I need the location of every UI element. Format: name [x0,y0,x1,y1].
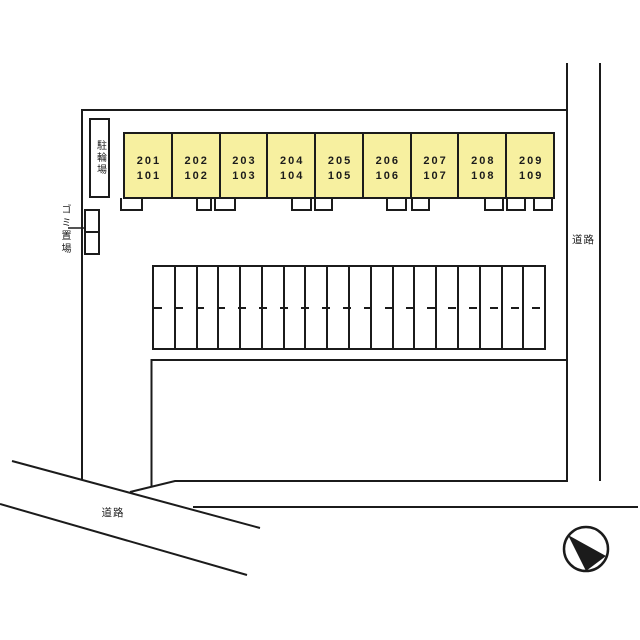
unit-upper-number: 201 [135,154,161,169]
unit-cell-201-101: 201 101 [125,134,173,197]
unit-cell-208-108: 208 108 [459,134,507,197]
road-label-bottom: 道路 [92,505,134,520]
entrance-porch [533,198,553,211]
entrance-porch [386,198,407,211]
lower-yard-bottom-edge [130,481,568,492]
entrance-porch [196,198,212,211]
unit-cell-205-105: 205 105 [316,134,364,197]
unit-cell-204-104: 204 104 [268,134,316,197]
garbage-area-label-wrap: ゴミ置場 [57,198,71,262]
entrance-porch [314,198,333,211]
unit-upper-number: 204 [278,154,304,169]
bicycle-parking-label: 駐輪場 [95,140,105,176]
unit-cell-202-102: 202 102 [173,134,221,197]
unit-lower-number: 105 [326,169,352,184]
unit-cell-207-107: 207 107 [412,134,460,197]
lower-yard-outline [152,360,568,486]
garbage-area-label: ゴミ置場 [59,204,69,256]
unit-lower-number: 106 [374,169,400,184]
entrance-porch [291,198,312,211]
bicycle-parking-box: 駐輪場 [89,118,110,198]
road-label-right: 道路 [567,232,600,247]
unit-upper-number: 202 [182,154,208,169]
unit-lower-number: 109 [517,169,543,184]
site-plan-canvas: 201 101 202 102 203 103 204 104 205 105 … [0,0,640,640]
unit-upper-number: 207 [421,154,447,169]
entrance-porch [484,198,504,211]
unit-cell-209-109: 209 109 [507,134,553,197]
unit-cell-203-103: 203 103 [221,134,269,197]
parking-lot [152,265,546,350]
parking-center-dashed-line [154,307,544,309]
unit-lower-number: 107 [421,169,447,184]
unit-lower-number: 104 [278,169,304,184]
unit-lower-number: 103 [230,169,256,184]
unit-upper-number: 209 [517,154,543,169]
unit-upper-number: 203 [230,154,256,169]
entrance-porch [411,198,430,211]
unit-upper-number: 208 [469,154,495,169]
building-row: 201 101 202 102 203 103 204 104 205 105 … [123,132,555,199]
entrance-porch [506,198,526,211]
unit-cell-206-106: 206 106 [364,134,412,197]
unit-lower-number: 101 [135,169,161,184]
north-arrow [564,527,608,571]
entrance-porch [214,198,236,211]
unit-upper-number: 206 [374,154,400,169]
unit-upper-number: 205 [326,154,352,169]
unit-lower-number: 102 [182,169,208,184]
entrance-porch [120,198,143,211]
unit-lower-number: 108 [469,169,495,184]
